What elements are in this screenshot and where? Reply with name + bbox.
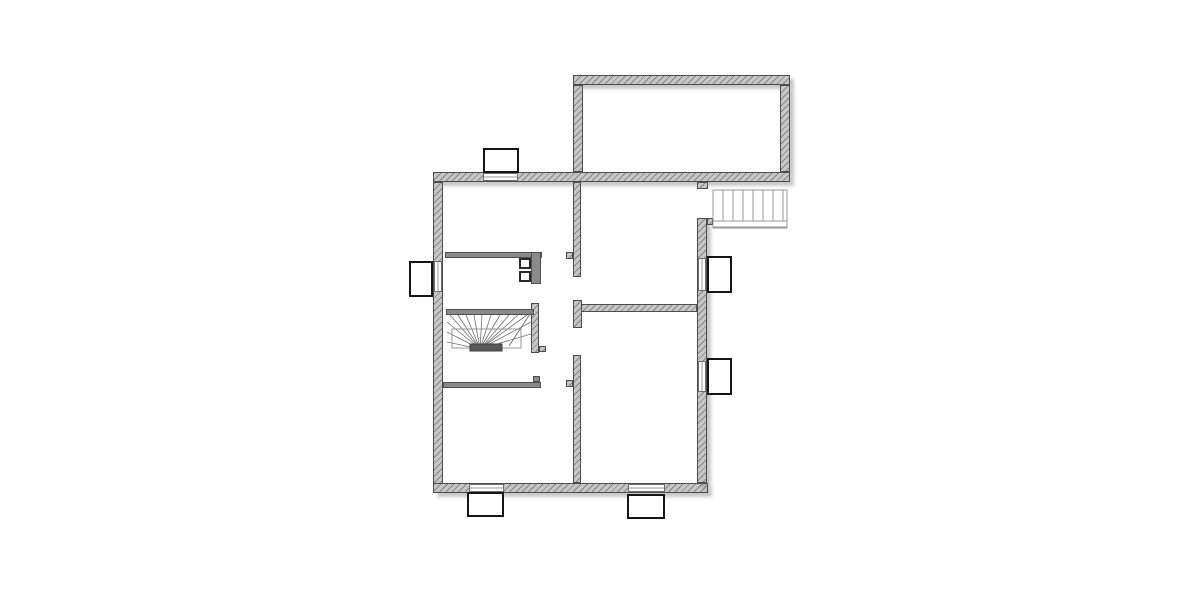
window-glazing-bottom-left: [469, 484, 504, 492]
lower-partition-hook: [533, 376, 540, 382]
upper-room-right-wall: [780, 85, 790, 172]
window-glazing-bottom-mid: [628, 484, 665, 492]
mid-wall-upper-tick: [566, 252, 573, 259]
window-box-bottom-mid: [627, 494, 665, 519]
window-glazing-top: [483, 173, 518, 181]
window-glazing-left: [434, 261, 442, 292]
stair-side-wall-tick: [539, 346, 546, 352]
lower-partition-wall: [443, 382, 541, 388]
window-glazing-right-upper: [698, 258, 706, 291]
upper-room-top-wall: [573, 75, 790, 85]
window-box-top: [483, 148, 519, 173]
window-glazing-right-lower: [698, 361, 706, 392]
mid-wall-upper: [573, 182, 581, 277]
stair-top-beam: [446, 309, 534, 315]
entry-notch: [697, 182, 708, 189]
upper-room-left-wall: [573, 85, 583, 172]
chimney-flue-2: [519, 271, 531, 282]
right-wall-top-tick: [707, 218, 713, 225]
chimney-flue-1: [519, 258, 531, 269]
floor-plan: [0, 0, 1200, 600]
window-box-right-upper: [707, 256, 732, 293]
window-box-left: [409, 261, 433, 297]
mid-wall-lower: [573, 355, 581, 483]
mid-horizontal-wall: [581, 304, 697, 312]
stairs-drawing-layer: [0, 0, 1200, 600]
window-box-bottom-left: [467, 492, 504, 517]
mid-wall-lower-tick: [566, 380, 573, 387]
left-wall: [433, 182, 443, 493]
window-box-right-lower: [707, 358, 732, 395]
chimney-stack: [531, 252, 541, 284]
